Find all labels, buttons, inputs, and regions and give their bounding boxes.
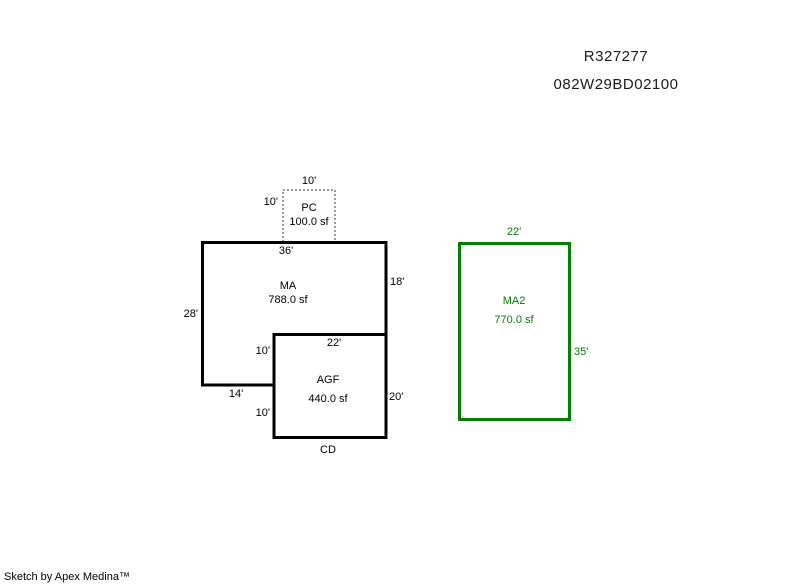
sketch-credit: Sketch by Apex Medina™: [4, 571, 130, 583]
agf-area: 440.0 sf: [280, 393, 376, 405]
agf-outline: [274, 335, 386, 438]
agf-label-bottom: CD: [298, 444, 358, 456]
agf-dim-left-lower: 10': [248, 407, 270, 419]
pc-dim-top: 10': [283, 175, 335, 187]
ma2-dim-top: 22': [459, 226, 569, 238]
ma-dim-left: 28': [174, 308, 198, 320]
agf-dim-left-upper: 10': [248, 345, 270, 357]
ma-code: MA: [238, 280, 338, 292]
agf-dim-right: 20': [389, 391, 403, 403]
agf-dim-top: 22': [310, 337, 358, 349]
ma2-outline: [460, 244, 570, 420]
agf-code: AGF: [280, 374, 376, 386]
pc-area: 100.0 sf: [283, 216, 335, 228]
ma2-area: 770.0 sf: [464, 314, 564, 326]
ma-dim-right: 18': [390, 276, 404, 288]
ma-dim-top: 36': [262, 245, 310, 257]
pc-dim-left: 10': [254, 196, 278, 208]
pc-code: PC: [283, 202, 335, 214]
ma-area: 788.0 sf: [238, 294, 338, 306]
ma-dim-bottom: 14': [212, 388, 260, 400]
ma2-dim-right: 35': [574, 346, 588, 358]
sketch-page: R327277 082W29BD02100 10' 10' PC 100.0 s…: [0, 0, 800, 587]
sketch-canvas: [0, 0, 800, 587]
ma2-code: MA2: [464, 295, 564, 307]
